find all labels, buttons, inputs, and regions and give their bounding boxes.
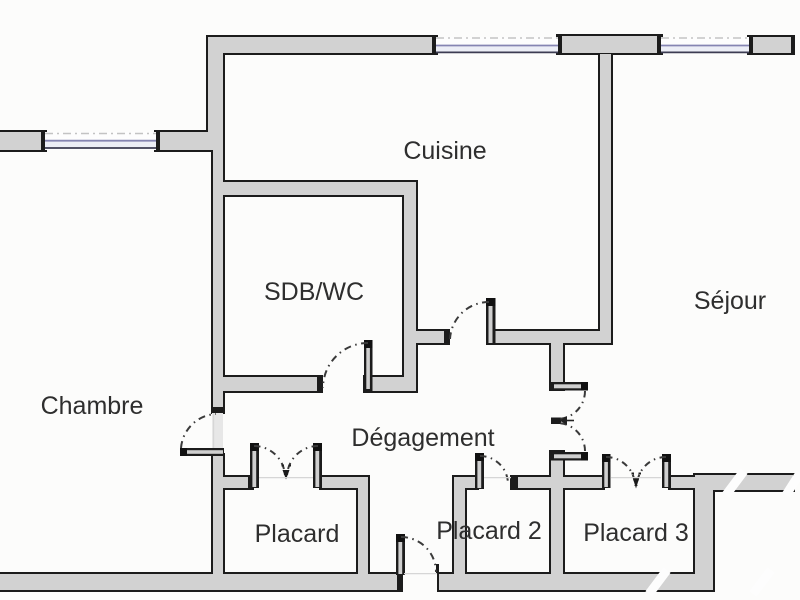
svg-text:Séjour: Séjour	[694, 287, 766, 315]
svg-text:Placard 3: Placard 3	[583, 519, 689, 547]
svg-text:Chambre: Chambre	[41, 392, 144, 420]
svg-text:SDB/WC: SDB/WC	[264, 278, 364, 306]
svg-text:Dégagement: Dégagement	[351, 424, 494, 452]
svg-text:Placard: Placard	[255, 520, 340, 548]
svg-text:Placard 2: Placard 2	[436, 517, 542, 545]
svg-text:Cuisine: Cuisine	[403, 137, 486, 165]
